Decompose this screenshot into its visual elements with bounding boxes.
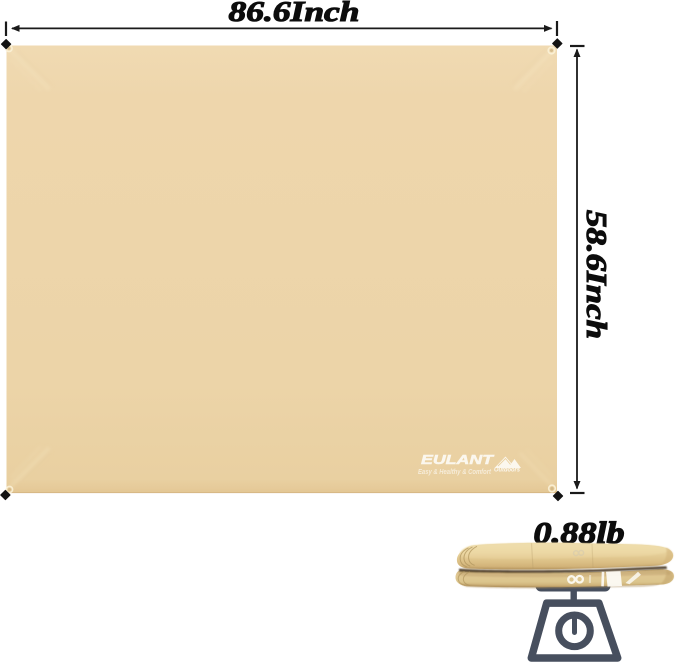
svg-text:EULANT: EULANT <box>421 453 495 467</box>
svg-text:58.6Inch: 58.6Inch <box>580 210 612 339</box>
svg-text:Easy & Healthy & Comfort: Easy & Healthy & Comfort <box>418 467 491 476</box>
svg-text:Outdoors: Outdoors <box>494 467 521 474</box>
svg-text:86.6Inch: 86.6Inch <box>229 0 360 28</box>
